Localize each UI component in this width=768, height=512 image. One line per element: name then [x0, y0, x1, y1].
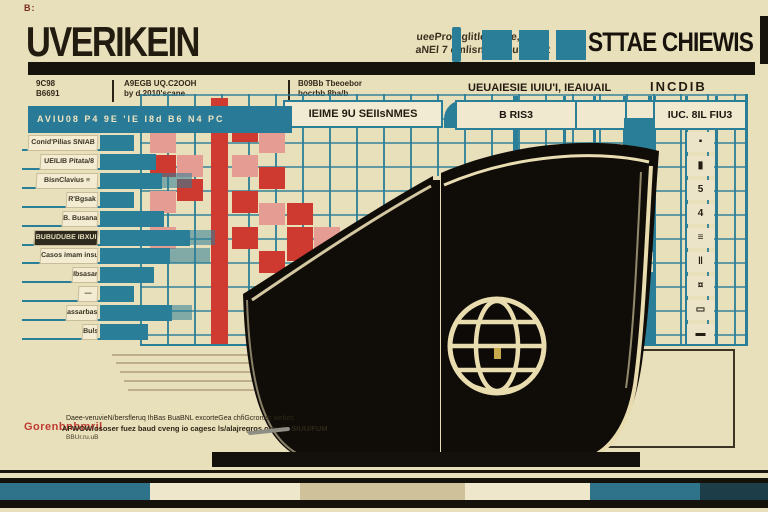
- bottom-black-stripe: [0, 500, 768, 508]
- bottom-hairline: [0, 470, 768, 473]
- book-shelf-bar: [212, 452, 640, 467]
- passport-book-illustration: [0, 0, 768, 512]
- footer-line-1: Daee-veruvieN/bersfleruq IhBas BuaBNL ex…: [66, 415, 294, 422]
- bottom-band-segment: [590, 483, 700, 500]
- poster-canvas: B: UVERIKEIN ueePromglitlor, ame, 6RP aN…: [0, 0, 768, 512]
- footer-line-3: BBUr.ru.uB: [66, 434, 99, 441]
- book-spine-center: [432, 180, 440, 456]
- bottom-band-segment: [465, 483, 590, 500]
- bottom-band-segment: [700, 483, 768, 500]
- bottom-band-segment: [300, 483, 465, 500]
- bottom-band: [0, 483, 768, 500]
- bottom-band-segment: [0, 483, 150, 500]
- globe-icon: [450, 299, 544, 393]
- bottom-band-segment: [150, 483, 300, 500]
